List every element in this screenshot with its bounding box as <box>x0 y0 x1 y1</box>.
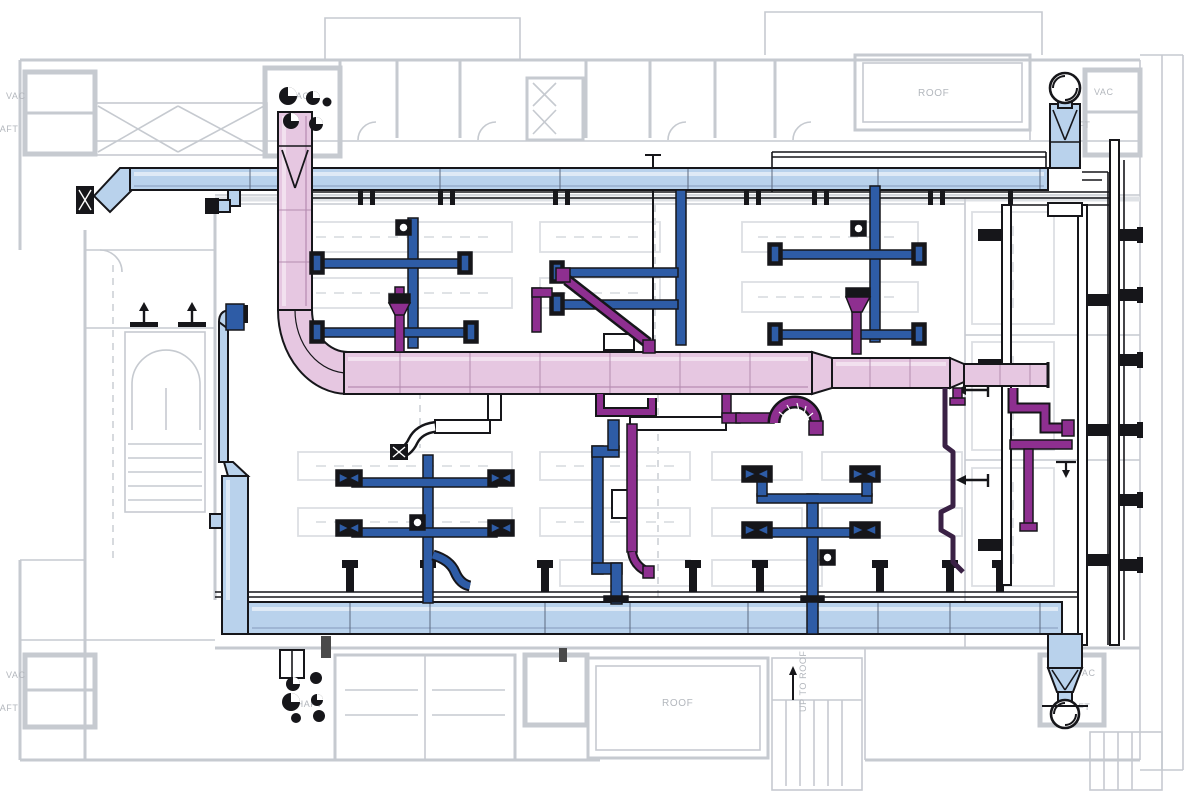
label-vac-right-top: VAC <box>1094 87 1114 97</box>
lab-exhaust-branches <box>226 186 926 634</box>
hvac-floor-plan-screenshot: VAC SHAFT VAC ROOF VAC SHAFT VAC SHAFT S… <box>0 0 1200 804</box>
label-vac-left-top: VAC <box>6 91 26 101</box>
bottom-shaft-risers <box>280 650 325 723</box>
label-up-to-roof: UP TO ROOF <box>798 650 808 712</box>
hvac-duct-floor-plan: VAC SHAFT VAC ROOF VAC SHAFT VAC SHAFT S… <box>0 0 1200 804</box>
supply-air-ducts <box>94 73 1088 728</box>
label-roof-top-right: ROOF <box>918 88 949 99</box>
general-exhaust-trunk <box>278 112 1048 394</box>
label-vac-left-bottom: VAC <box>6 670 26 680</box>
exhaust-fan-symbol-top <box>1050 73 1080 103</box>
label-shaft-left-bottom: SHAFT <box>0 703 19 713</box>
label-shaft-left-top: SHAFT <box>0 124 19 134</box>
label-roof-bottom: ROOF <box>662 698 693 709</box>
exhaust-fan-symbol-bottom <box>1051 700 1079 728</box>
